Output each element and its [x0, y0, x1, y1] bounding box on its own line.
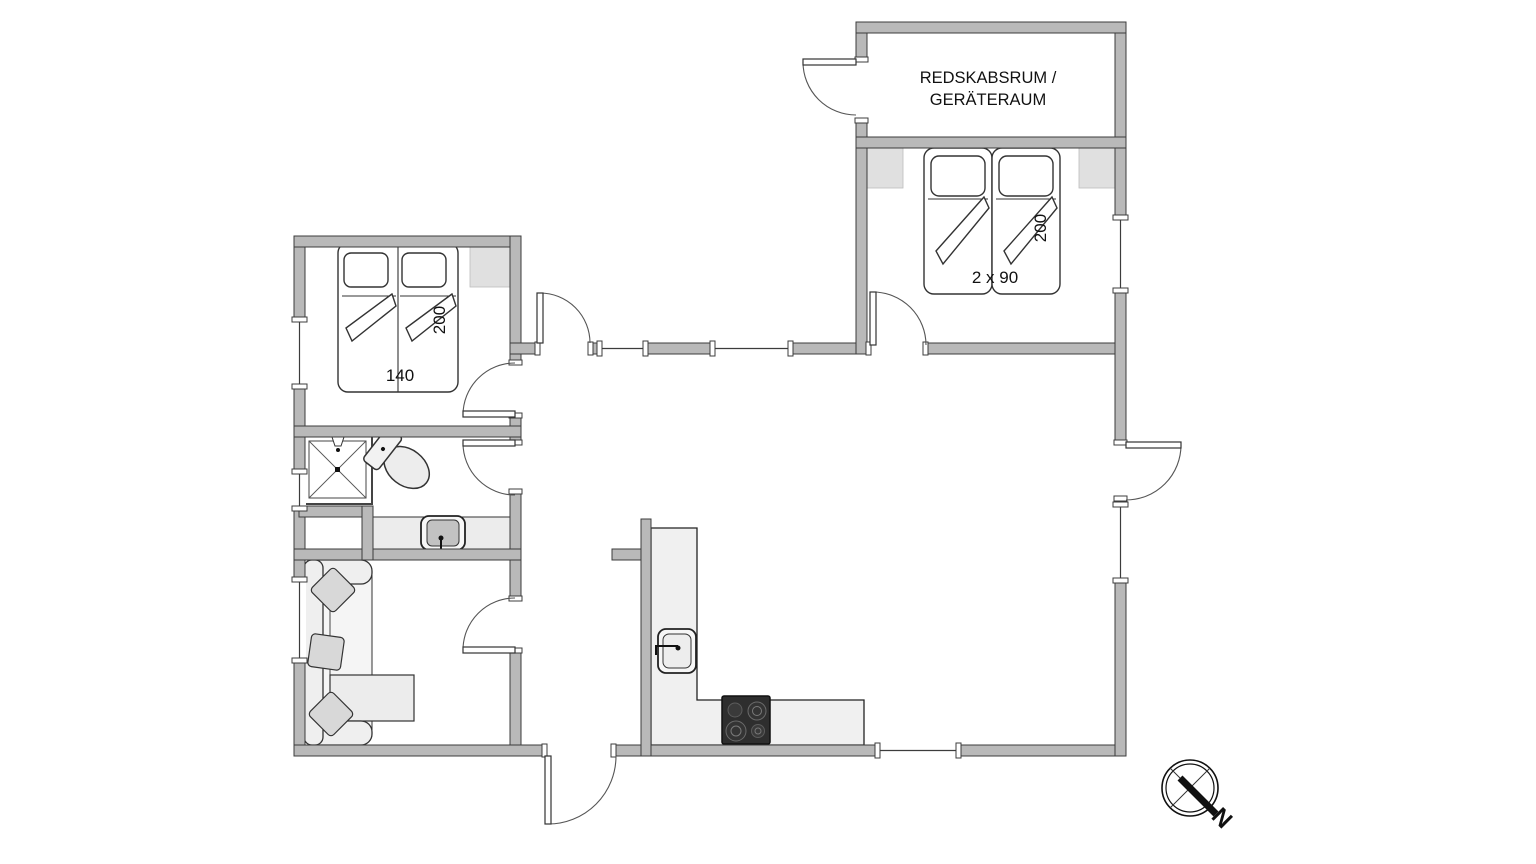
- door-leaf: [1126, 442, 1181, 448]
- burner: [748, 702, 766, 720]
- window: [292, 577, 307, 663]
- kitchen-faucet-dot: [676, 646, 681, 651]
- bed-width-label: 2 x 90: [972, 268, 1018, 287]
- door-leaf: [870, 292, 876, 345]
- door-swing: [463, 443, 515, 495]
- wall: [294, 236, 305, 320]
- window: [597, 341, 648, 356]
- door-leaf: [463, 411, 515, 417]
- wardrobe: [1079, 148, 1115, 188]
- tool-room-label-line2: GERÄTERAUM: [930, 91, 1046, 109]
- wall: [510, 491, 521, 600]
- tool-room-label-line1: REDSKABSRUM /: [920, 69, 1057, 87]
- window: [1113, 215, 1128, 293]
- door-terrace: [1114, 440, 1181, 501]
- pillow: [999, 156, 1053, 196]
- door-bedroom-left: [463, 360, 522, 418]
- door-swing: [803, 62, 856, 115]
- wardrobe: [470, 247, 510, 287]
- burner: [728, 703, 742, 717]
- wall: [613, 745, 878, 756]
- door-main-top: [535, 293, 593, 355]
- burner: [726, 721, 746, 741]
- door-living-room: [463, 596, 522, 653]
- wall-closet: [362, 506, 373, 560]
- door-leaf: [803, 59, 856, 65]
- door-swing: [463, 598, 515, 650]
- stove: [722, 696, 770, 744]
- sink-basin: [427, 520, 459, 546]
- window: [875, 743, 961, 758]
- wall: [294, 549, 521, 560]
- door-leaf: [537, 293, 543, 343]
- wall: [856, 137, 1126, 148]
- door-leaf: [463, 440, 515, 446]
- floor-plan: 140 200 2 x 90 200: [0, 0, 1536, 864]
- kitchen-sink-basin: [663, 634, 691, 668]
- cushion: [307, 633, 344, 670]
- door-swing: [873, 292, 926, 345]
- door-bedroom-right: [866, 292, 928, 355]
- kitchen-unit: [651, 528, 864, 745]
- pillow: [931, 156, 985, 196]
- shower-head-dot: [336, 448, 340, 452]
- wall: [856, 120, 867, 354]
- window: [710, 341, 793, 356]
- wall: [294, 426, 521, 437]
- door-swing: [463, 363, 515, 415]
- burner: [752, 725, 765, 738]
- window: [292, 317, 307, 389]
- bed-length-label: 200: [430, 306, 449, 334]
- wall-kitchen-partition: [641, 519, 651, 756]
- shower: [303, 435, 372, 504]
- door-tool-room: [803, 57, 868, 123]
- compass-needle: [1180, 778, 1216, 814]
- window: [292, 469, 307, 511]
- drain: [335, 467, 340, 472]
- wall-kitchen-stub: [612, 549, 641, 560]
- wall: [510, 650, 521, 756]
- wall: [1115, 290, 1126, 443]
- faucet-dot: [439, 536, 444, 541]
- door-leaf: [545, 756, 551, 824]
- door-swing: [540, 293, 590, 343]
- sofa: [304, 560, 414, 745]
- door-swing: [548, 756, 616, 824]
- door-bathroom: [463, 440, 522, 495]
- compass: N: [1162, 760, 1237, 834]
- wall: [856, 22, 1126, 33]
- window: [1113, 502, 1128, 583]
- wardrobe: [867, 148, 903, 188]
- door-leaf: [463, 647, 515, 653]
- bed-width-label: 140: [386, 366, 414, 385]
- door-main-entrance: [542, 744, 616, 824]
- wall: [925, 343, 1126, 354]
- wall: [1115, 580, 1126, 756]
- pillow-right: [402, 253, 446, 287]
- wall: [510, 343, 538, 354]
- door-swing: [1126, 445, 1181, 500]
- wall: [645, 343, 713, 354]
- wall: [294, 508, 305, 580]
- room-main-area: [521, 354, 1115, 745]
- vanity: [373, 516, 510, 551]
- wall: [958, 745, 1126, 756]
- wall: [294, 660, 305, 756]
- bed-length-label: 200: [1031, 214, 1050, 242]
- wall: [1115, 22, 1126, 218]
- pillow-left: [344, 253, 388, 287]
- wall: [294, 745, 545, 756]
- wall: [294, 236, 521, 247]
